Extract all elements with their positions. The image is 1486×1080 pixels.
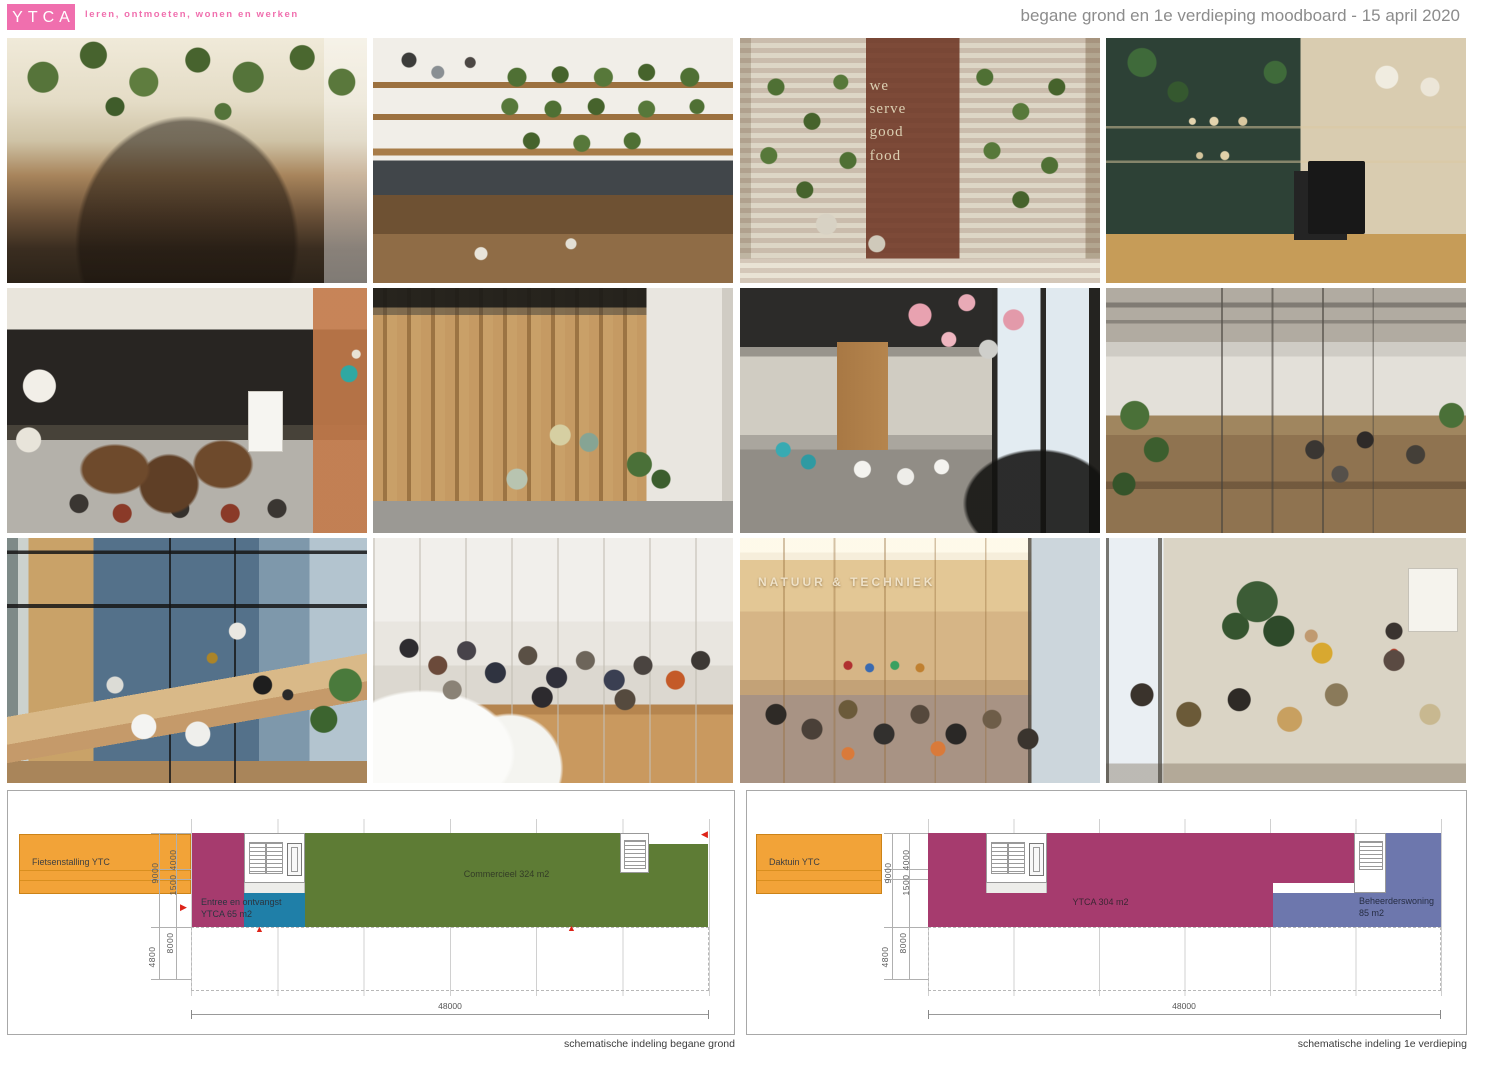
floorplan-ground: Fietsenstalling YTC Commercieel 324 m2 E…	[7, 790, 735, 1035]
zone-label: Entree en ontvangst YTCA 65 m2	[201, 897, 331, 920]
dimension-line	[928, 1014, 1441, 1015]
zone-label: Daktuin YTC	[769, 857, 820, 867]
dimension-tick	[884, 979, 928, 980]
photo-open-office-concrete-ceiling	[1106, 288, 1466, 533]
dimension-label: 4800	[880, 937, 890, 977]
stair-core	[244, 833, 305, 883]
elevator-icon	[287, 843, 302, 876]
dimension-tick	[884, 833, 928, 834]
stairs-icon	[266, 842, 283, 874]
zone-label: Beheerderswoning 85 m2	[1359, 896, 1454, 919]
entrance-marker-icon: ▲	[255, 925, 264, 934]
floorplate-outline	[928, 927, 1441, 991]
zone-label: YTCA 304 m2	[928, 897, 1273, 907]
photo-workshop-group-discussion	[1106, 538, 1466, 783]
stair-core	[986, 833, 1047, 883]
dimension-label: 4800	[147, 937, 157, 977]
dimension-label: 8000	[165, 923, 175, 963]
stair-core	[620, 833, 649, 873]
photo-restaurant-pink-pendant-lamps	[740, 288, 1100, 533]
floorplate-notch	[649, 833, 708, 844]
floorplate-outline	[191, 927, 709, 991]
zone-fietsenstalling: Fietsenstalling YTC	[19, 834, 191, 894]
dimension-label: 48000	[1149, 1001, 1219, 1011]
photo-cafe-plant-shelves	[373, 38, 733, 283]
page-title: begane grond en 1e verdieping moodboard …	[1021, 6, 1461, 26]
dimension-label: 9000	[883, 853, 893, 893]
dimension-tick	[151, 979, 191, 980]
ytca-logo: YTCA	[7, 4, 75, 30]
stairs-icon	[1008, 842, 1025, 874]
zone-ytca	[1273, 833, 1355, 883]
stair-core	[1354, 833, 1386, 893]
dimension-label: 1500	[901, 865, 911, 905]
stairs-icon	[1359, 841, 1383, 870]
dimension-label: 8000	[898, 923, 908, 963]
moodboard-page: YTCA leren, ontmoeten, wonen en werken b…	[0, 0, 1486, 1080]
plan-caption-ground: schematische indeling begane grond	[7, 1038, 735, 1050]
photo-wall-lettering: NATUUR & TECHNIEK	[758, 575, 935, 589]
floorplan-first-floor: Daktuin YTC YTCA 304 m2 Beheerderswoning…	[746, 790, 1467, 1035]
dimension-label: 1500	[168, 865, 178, 905]
dimension-label: 48000	[415, 1001, 485, 1011]
entrance-marker-icon: ▲	[567, 924, 576, 933]
photo-blue-study-room-window-desk	[7, 538, 367, 783]
core-landing	[986, 883, 1047, 893]
photo-wall-lettering: we serve good food	[870, 75, 907, 168]
plan-caption-first-floor: schematische indeling 1e verdieping	[746, 1038, 1467, 1050]
entrance-marker-icon: ▶	[180, 903, 187, 912]
stairs-icon	[991, 842, 1008, 874]
zone-ytca: YTCA 304 m2	[928, 833, 1273, 927]
zone-daktuin: Daktuin YTC	[756, 834, 882, 894]
stairs-icon	[624, 840, 646, 869]
photo-library-natuur-techniek: NATUUR & TECHNIEK	[740, 538, 1100, 783]
photo-coworking-space-hanging-plants	[7, 38, 367, 283]
dimension-label: 9000	[150, 853, 160, 893]
photo-coffee-bar-green-wall	[1106, 38, 1466, 283]
dimension-line	[191, 1014, 709, 1015]
tagline: leren, ontmoeten, wonen en werken	[85, 9, 299, 20]
zone-label: Fietsenstalling YTC	[32, 857, 110, 867]
photo-wood-slat-interior	[373, 288, 733, 533]
photo-restaurant-brick-wall-plants: we serve good food	[740, 38, 1100, 283]
dimension-tick	[151, 833, 191, 834]
entrance-marker-icon: ◀	[701, 830, 708, 839]
core-landing	[244, 883, 305, 893]
elevator-icon	[1029, 843, 1044, 876]
stairs-icon	[249, 842, 266, 874]
photo-dark-meeting-room	[7, 288, 367, 533]
photo-white-stepped-study-landscape	[373, 538, 733, 783]
